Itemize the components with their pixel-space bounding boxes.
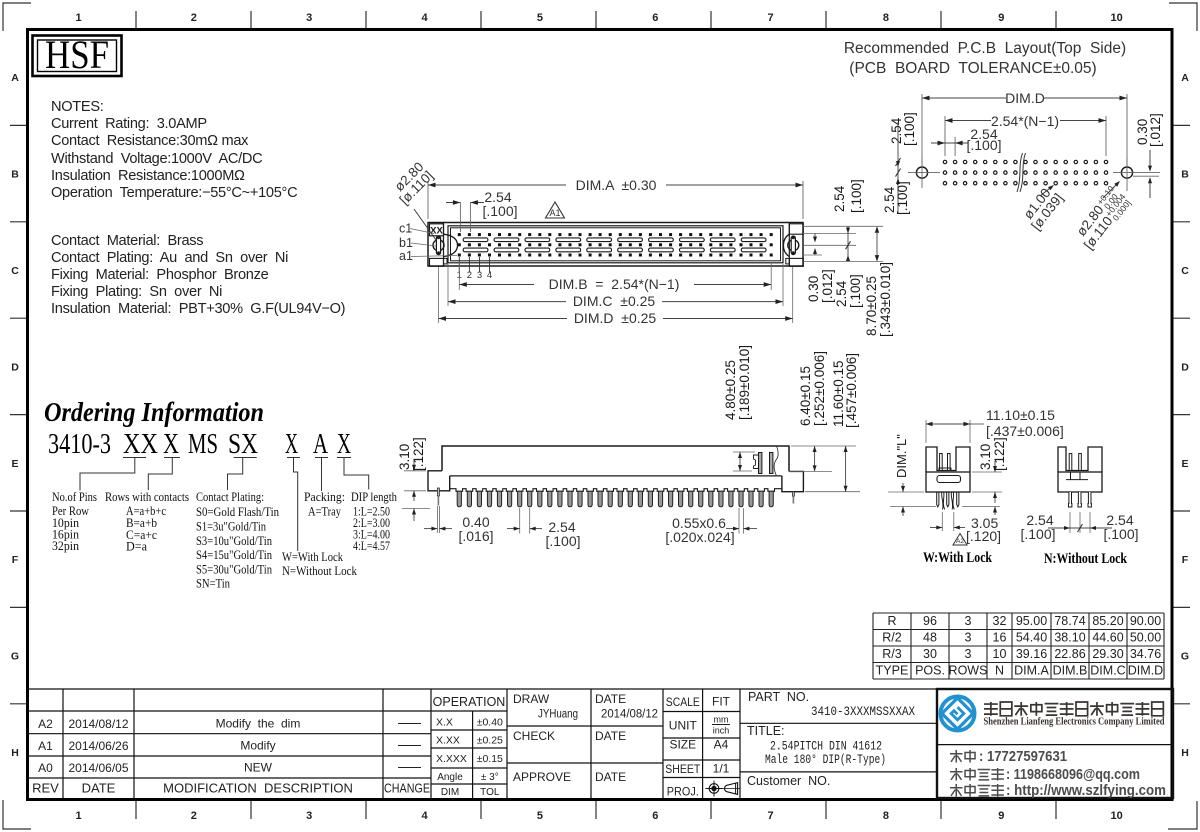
svg-text:[.457±0.006]: [.457±0.006] <box>844 353 859 428</box>
svg-text:5: 5 <box>537 810 543 822</box>
svg-text:22.86: 22.86 <box>1054 647 1085 661</box>
svg-text:Operation Temperature:−55°C~+: Operation Temperature:−55°C~+105°C <box>51 185 297 201</box>
svg-text:2.54*(N−1): 2.54*(N−1) <box>991 113 1059 129</box>
svg-text:[.100]: [.100] <box>1103 526 1138 542</box>
svg-text:DIP length: DIP length <box>351 490 398 504</box>
svg-text:JYHuang: JYHuang <box>538 709 578 721</box>
svg-text:[.437±0.006]: [.437±0.006] <box>986 423 1064 439</box>
svg-text:PROJ.: PROJ. <box>667 785 699 799</box>
svg-text:Shenzhen Lianfeng Electronics: Shenzhen Lianfeng Electronics Company Li… <box>984 717 1165 728</box>
svg-text:X.XXX: X.XXX <box>436 753 467 765</box>
svg-text:D: D <box>1181 361 1189 373</box>
svg-text:4:L=4.57: 4:L=4.57 <box>353 539 390 553</box>
svg-text:B: B <box>1181 169 1189 181</box>
svg-text:: 17727597631: : 17727597631 <box>979 749 1067 765</box>
svg-text:2: 2 <box>191 810 197 822</box>
svg-text:X: X <box>285 429 298 460</box>
svg-text:Angle: Angle <box>437 772 463 783</box>
svg-text:MODIFICATION DESCRIPTION: MODIFICATION DESCRIPTION <box>163 781 353 796</box>
svg-text:A=Tray: A=Tray <box>308 505 342 519</box>
svg-text:DATE: DATE <box>595 692 626 706</box>
svg-text:Withstand Voltage:1000V AC/D: Withstand Voltage:1000V AC/DC <box>51 151 262 167</box>
svg-text:N:Without Lock: N:Without Lock <box>1044 551 1128 567</box>
svg-text:85.20: 85.20 <box>1092 614 1123 628</box>
svg-text:2.54: 2.54 <box>832 185 847 212</box>
svg-text:16: 16 <box>993 631 1007 645</box>
svg-text:: http://www.szlfying.com: : http://www.szlfying.com <box>1006 783 1166 799</box>
svg-text:Customer NO.: Customer NO. <box>747 774 830 788</box>
svg-text:C: C <box>11 265 19 277</box>
svg-text:W=With Lock: W=With Lock <box>282 550 344 564</box>
svg-text:A2: A2 <box>956 538 964 545</box>
svg-text:CHANGE: CHANGE <box>384 782 430 796</box>
svg-text:b1: b1 <box>399 236 413 250</box>
svg-text:D: D <box>11 361 19 373</box>
svg-text:10: 10 <box>1111 12 1123 24</box>
svg-text:A0: A0 <box>38 761 53 775</box>
svg-text:Insulation Resistance:1000MΩ: Insulation Resistance:1000MΩ <box>51 168 245 184</box>
svg-text:4: 4 <box>421 12 428 24</box>
svg-text:2014/06/26: 2014/06/26 <box>68 739 128 753</box>
svg-text:DIM.A: DIM.A <box>1014 664 1049 678</box>
svg-text:32pin: 32pin <box>52 539 80 553</box>
svg-text:5: 5 <box>537 12 543 24</box>
svg-text:SX: SX <box>228 429 258 460</box>
svg-text:3.10: 3.10 <box>978 444 993 470</box>
svg-text:NEW: NEW <box>244 761 273 775</box>
svg-text:XX: XX <box>123 429 158 460</box>
svg-text:FIT: FIT <box>712 695 731 709</box>
svg-text:S4=15u"Gold/Tin: S4=15u"Gold/Tin <box>196 548 273 562</box>
svg-text:DIM.C ±0.25: DIM.C ±0.25 <box>573 293 656 309</box>
svg-text:44.60: 44.60 <box>1092 631 1123 645</box>
svg-text:F: F <box>12 554 19 566</box>
svg-text:90.00: 90.00 <box>1130 614 1161 628</box>
svg-text:± 3°: ± 3° <box>481 772 499 783</box>
svg-text:95.00: 95.00 <box>1016 614 1047 628</box>
svg-text:(PCB BOARD TOLERANCE±0.05): (PCB BOARD TOLERANCE±0.05) <box>849 60 1096 77</box>
svg-text:3: 3 <box>306 810 312 822</box>
svg-text:TITLE:: TITLE: <box>747 724 785 738</box>
svg-text:TYPE: TYPE <box>876 664 909 678</box>
svg-text:2.54PITCH DIN 41612: 2.54PITCH DIN 41612 <box>770 740 882 754</box>
svg-text:±0.15: ±0.15 <box>477 753 503 765</box>
svg-text:0.30: 0.30 <box>806 276 821 302</box>
svg-text:S3=10u"Gold/Tin: S3=10u"Gold/Tin <box>196 534 273 548</box>
svg-text:G: G <box>11 651 19 663</box>
svg-text:DATE: DATE <box>595 770 626 784</box>
svg-text:A: A <box>11 72 19 84</box>
svg-text:2014/08/12: 2014/08/12 <box>68 717 128 731</box>
svg-text:3: 3 <box>965 614 972 628</box>
svg-text:[.343±0.010]: [.343±0.010] <box>878 262 893 337</box>
svg-text:Modify the dim: Modify the dim <box>216 717 301 731</box>
svg-text:Current Rating: 3.0AMP: Current Rating: 3.0AMP <box>51 116 207 132</box>
svg-text:[.012]: [.012] <box>820 269 835 303</box>
svg-text:A: A <box>313 429 329 460</box>
svg-text:38.10: 38.10 <box>1054 631 1085 645</box>
svg-text:[.122]: [.122] <box>411 437 426 471</box>
svg-text:8: 8 <box>883 810 889 822</box>
svg-text:[.100]: [.100] <box>545 533 580 549</box>
svg-text:10: 10 <box>1111 810 1123 822</box>
svg-text:DATE: DATE <box>595 729 626 743</box>
svg-text:DIM.C: DIM.C <box>1090 664 1125 678</box>
svg-text:[.012]: [.012] <box>1148 113 1163 147</box>
svg-text:3: 3 <box>965 631 972 645</box>
svg-text:[.100]: [.100] <box>1020 526 1055 542</box>
svg-text:2014/08/12: 2014/08/12 <box>601 709 658 721</box>
svg-text:HSF: HSF <box>45 32 109 77</box>
svg-text:ROWS: ROWS <box>949 664 988 678</box>
svg-text:S0=Gold Flash/Tin: S0=Gold Flash/Tin <box>196 505 280 519</box>
svg-text:[.100]: [.100] <box>902 112 917 146</box>
svg-text:N=Without Lock: N=Without Lock <box>282 564 358 578</box>
svg-text:[.100]: [.100] <box>482 203 517 219</box>
svg-text:1/1: 1/1 <box>713 762 730 776</box>
svg-text:Modify: Modify <box>240 739 275 753</box>
svg-text:DIM."L": DIM."L" <box>894 434 909 478</box>
svg-text:3410-3: 3410-3 <box>48 429 111 460</box>
svg-text:DRAW: DRAW <box>513 692 550 706</box>
svg-text:3: 3 <box>477 270 482 281</box>
svg-text:No.of Pins: No.of Pins <box>52 490 97 504</box>
svg-text:4.80±0.25: 4.80±0.25 <box>723 360 738 420</box>
svg-text:inch: inch <box>713 726 730 736</box>
svg-text:SIZE: SIZE <box>669 738 696 752</box>
svg-text:±0.25: ±0.25 <box>477 735 503 747</box>
svg-text:Contact Resistance:30mΩ max: Contact Resistance:30mΩ max <box>51 133 249 149</box>
svg-text:9: 9 <box>998 810 1004 822</box>
svg-text:APPROVE: APPROVE <box>513 770 571 784</box>
svg-text:UNIT: UNIT <box>669 719 698 733</box>
svg-text:X.X: X.X <box>436 717 453 729</box>
svg-text:1: 1 <box>75 810 81 822</box>
svg-text:50.00: 50.00 <box>1130 631 1161 645</box>
svg-text:1: 1 <box>75 12 81 24</box>
svg-text:DIM.D ±0.25: DIM.D ±0.25 <box>574 310 657 326</box>
svg-text:7: 7 <box>768 810 774 822</box>
svg-text:8.70±0.25: 8.70±0.25 <box>864 276 879 336</box>
svg-text:3.10: 3.10 <box>397 444 412 470</box>
svg-text:11.10±0.15: 11.10±0.15 <box>986 407 1055 423</box>
svg-text:H: H <box>11 747 19 759</box>
svg-text:[.189±0.010]: [.189±0.010] <box>737 345 752 420</box>
svg-text:N: N <box>995 664 1004 678</box>
svg-text:NOTES:: NOTES: <box>51 99 104 115</box>
svg-text:54.40: 54.40 <box>1016 631 1047 645</box>
svg-text:REV: REV <box>32 781 59 796</box>
svg-text:A1: A1 <box>549 208 560 218</box>
svg-text:3: 3 <box>965 647 972 661</box>
svg-text:9: 9 <box>998 12 1004 24</box>
svg-text:Insulation Material: PBT+30%: Insulation Material: PBT+30% G.F(UL94V−O… <box>51 301 345 317</box>
svg-text:2.54: 2.54 <box>834 280 849 307</box>
svg-text:A2: A2 <box>38 717 53 731</box>
svg-text:2: 2 <box>467 270 472 281</box>
svg-text:A4: A4 <box>714 738 729 752</box>
svg-text:DIM.D: DIM.D <box>1005 90 1045 106</box>
svg-text:Contact Plating:: Contact Plating: <box>196 490 264 504</box>
svg-text:39.16: 39.16 <box>1016 647 1047 661</box>
svg-text:4: 4 <box>421 810 428 822</box>
svg-text:A: A <box>1181 72 1189 84</box>
svg-text:[.120]: [.120] <box>966 528 1001 544</box>
svg-text:TOL: TOL <box>480 787 500 798</box>
svg-text:F: F <box>1182 554 1189 566</box>
svg-text:X: X <box>337 429 351 460</box>
svg-text:DIM: DIM <box>441 787 459 798</box>
svg-text:Fixing Plating: Sn over Ni: Fixing Plating: Sn over Ni <box>51 284 222 300</box>
svg-text:X: X <box>163 429 179 460</box>
svg-text:DATE: DATE <box>82 781 116 796</box>
svg-text:48: 48 <box>923 631 937 645</box>
svg-text:78.74: 78.74 <box>1054 614 1085 628</box>
svg-text:Recommended P.C.B Layout(Top: Recommended P.C.B Layout(Top Side) <box>844 40 1126 57</box>
svg-text:SHEET: SHEET <box>665 762 701 776</box>
svg-text:E: E <box>11 458 18 470</box>
svg-text:Contact Material: Brass: Contact Material: Brass <box>51 233 203 249</box>
svg-text:[.100]: [.100] <box>849 179 864 213</box>
svg-text:Male 180° DIP(R-Type): Male 180° DIP(R-Type) <box>765 753 886 767</box>
svg-text:SN=Tin: SN=Tin <box>196 577 231 591</box>
svg-text:B: B <box>11 169 19 181</box>
svg-text:30: 30 <box>923 647 937 661</box>
svg-text:3410-3XXXMSSXXAX: 3410-3XXXMSSXXAX <box>811 705 915 719</box>
svg-text:POS.: POS. <box>915 664 945 678</box>
svg-text:2014/06/05: 2014/06/05 <box>68 761 128 775</box>
svg-text:MS: MS <box>188 429 218 460</box>
svg-text:D=a: D=a <box>126 540 147 554</box>
svg-text:OPERATION: OPERATION <box>433 695 506 709</box>
svg-text:3: 3 <box>306 12 312 24</box>
svg-text:: 1198668096@qq.com: : 1198668096@qq.com <box>1006 767 1140 783</box>
svg-text:W:With Lock: W:With Lock <box>923 550 993 566</box>
svg-text:DIM.B: DIM.B <box>1053 664 1088 678</box>
svg-text:[.016]: [.016] <box>458 528 493 544</box>
svg-text:DIM.A ±0.30: DIM.A ±0.30 <box>576 177 657 193</box>
svg-text:96: 96 <box>923 614 937 628</box>
svg-text:2: 2 <box>191 12 197 24</box>
svg-text:C: C <box>1181 265 1189 277</box>
svg-text:6: 6 <box>652 12 658 24</box>
svg-text:SCALE: SCALE <box>666 695 700 709</box>
svg-text:E: E <box>1181 458 1188 470</box>
svg-text:R/2: R/2 <box>882 631 902 645</box>
svg-text:a1: a1 <box>399 249 413 263</box>
svg-text:34.76: 34.76 <box>1130 647 1161 661</box>
svg-text:S5=30u"Gold/Tin: S5=30u"Gold/Tin <box>196 563 273 577</box>
svg-text:R/3: R/3 <box>882 647 902 661</box>
svg-text:[.100]: [.100] <box>966 137 1001 153</box>
svg-text:29.30: 29.30 <box>1092 647 1123 661</box>
svg-text:6.40±0.15: 6.40±0.15 <box>798 366 813 426</box>
svg-text:A1: A1 <box>38 739 53 753</box>
svg-text:Ordering Information: Ordering Information <box>44 397 264 427</box>
svg-text:Rows with contacts: Rows with contacts <box>105 490 189 504</box>
svg-text:CHECK: CHECK <box>513 729 555 743</box>
svg-text:7: 7 <box>768 12 774 24</box>
svg-text:10: 10 <box>993 647 1007 661</box>
svg-text:G: G <box>1181 651 1189 663</box>
svg-text:4: 4 <box>487 270 492 281</box>
svg-text:DIM.B = 2.54*(N−1): DIM.B = 2.54*(N−1) <box>549 276 680 292</box>
svg-text:H: H <box>1181 747 1189 759</box>
svg-text:R: R <box>887 614 896 628</box>
svg-text:[.100]: [.100] <box>848 274 863 308</box>
svg-text:S1=3u"Gold/Tin: S1=3u"Gold/Tin <box>196 520 267 534</box>
svg-text:32: 32 <box>993 614 1007 628</box>
svg-text:6: 6 <box>652 810 658 822</box>
svg-text:8: 8 <box>883 12 889 24</box>
svg-text:[.122]: [.122] <box>992 437 1007 471</box>
svg-text:Fixing Material: Phosphor B: Fixing Material: Phosphor Bronze <box>51 267 269 283</box>
svg-text:[.020x.024]: [.020x.024] <box>665 529 734 545</box>
svg-text:[.252±0.006]: [.252±0.006] <box>812 351 827 426</box>
svg-text:PART NO.: PART NO. <box>748 690 809 704</box>
svg-text:±0.40: ±0.40 <box>477 717 503 729</box>
svg-text:[.100]: [.100] <box>895 181 910 215</box>
svg-text:X.XX: X.XX <box>436 735 460 747</box>
svg-text:Contact Plating: Au and Sn: Contact Plating: Au and Sn over Ni <box>51 250 288 266</box>
svg-text:DIM.D: DIM.D <box>1128 664 1163 678</box>
svg-text:Packing:: Packing: <box>304 490 345 504</box>
svg-text:mm: mm <box>714 715 729 725</box>
